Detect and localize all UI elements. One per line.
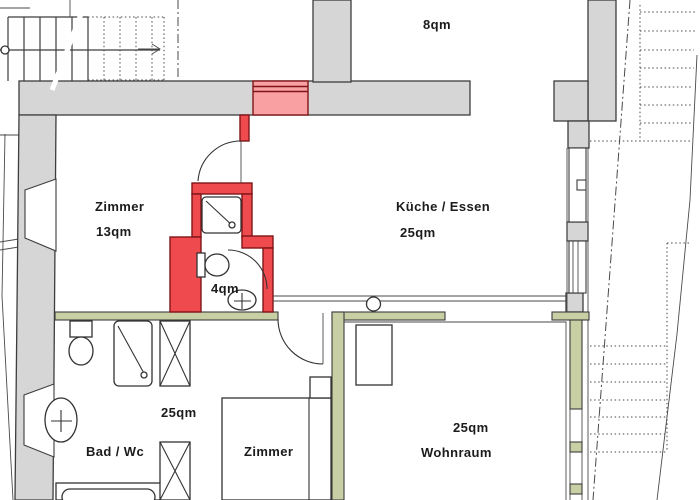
wc-symbol: [205, 254, 229, 276]
shower2-drain-icon: [141, 372, 147, 378]
nightstand-symbol: [310, 377, 331, 398]
stair-top-left: [0, 0, 178, 90]
label-attic-area: 8qm: [423, 17, 451, 32]
label-zimmer2-name: Zimmer: [244, 444, 293, 459]
column-symbol: [367, 297, 381, 311]
window-left-upper: [25, 179, 56, 251]
label-bath4-area: 4qm: [211, 281, 239, 296]
green-wall-mid: [332, 312, 445, 320]
wc-tank-symbol: [197, 253, 205, 277]
label-bad-area: 25qm: [161, 405, 197, 420]
bath-wall-step: [242, 236, 273, 248]
label-zimmer13-area: 13qm: [96, 224, 132, 239]
wall-attic-left: [313, 0, 351, 82]
wall-top-band: [19, 81, 470, 115]
green-wall-vertical: [332, 312, 344, 500]
red-wall-stub: [240, 115, 249, 141]
cupboard-symbol: [356, 325, 392, 385]
shower-drain-icon: [229, 222, 235, 228]
bath-wall-right-upper: [242, 194, 252, 238]
wc2-symbol: [69, 337, 93, 365]
door-arc-zimmer2: [278, 319, 323, 364]
kitchen-south-edge: [273, 296, 567, 311]
wall-right-column: [588, 0, 616, 121]
label-bad-name: Bad / Wc: [86, 444, 144, 459]
label-zimmer13-name: Zimmer: [95, 199, 144, 214]
wall-right-pier: [567, 222, 588, 241]
new-walls: [170, 81, 308, 312]
green-wall-right-1: [570, 320, 582, 409]
door-arc-zimmer13: [198, 141, 241, 181]
label-kueche-area: 25qm: [400, 225, 436, 240]
green-wall-right-2: [570, 442, 582, 452]
stair-outer-edge: [657, 55, 697, 500]
wall-right-stub: [568, 121, 589, 148]
green-wall-right-3: [570, 484, 582, 494]
wall-right-pier2: [566, 293, 583, 312]
label-wohnraum-name: Wohnraum: [421, 445, 492, 460]
window-east-lower: [569, 241, 586, 293]
wohnraum-outline: [344, 322, 566, 500]
stair-newel: [1, 46, 9, 54]
wc2-tank-symbol: [70, 321, 92, 337]
window-handle: [577, 180, 586, 190]
bath-wall-right-lower: [263, 248, 273, 312]
zimmer2-furniture: [222, 377, 331, 500]
floor-plan: 8qm Zimmer 13qm Küche / Essen 25qm 4qm B…: [0, 0, 700, 500]
floor-plan-drawing: [0, 0, 700, 500]
bath-wall-left-upper: [192, 194, 201, 237]
doors: [198, 141, 323, 364]
label-wohnraum-area: 25qm: [453, 420, 489, 435]
green-wall-west: [55, 312, 278, 320]
label-kueche-name: Küche / Essen: [396, 199, 490, 214]
green-wall-east: [552, 312, 589, 320]
wall-right-wing: [554, 81, 588, 121]
bath-wall-top: [192, 183, 252, 194]
bathtub-inner: [62, 489, 155, 500]
